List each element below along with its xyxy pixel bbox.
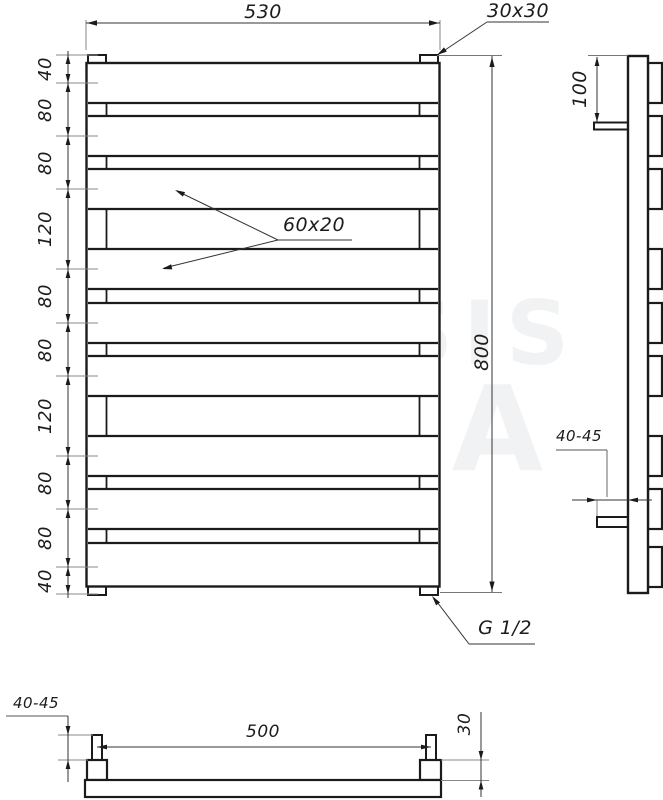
dim-label-40-45-side: 40-45	[551, 426, 607, 446]
rail-foot-left	[87, 760, 107, 780]
chain-dim-2: 80	[36, 88, 56, 132]
bar-stubs	[648, 63, 662, 587]
front-view	[87, 55, 440, 595]
bottom-view	[85, 735, 441, 797]
chain-dim-6: 80	[36, 328, 56, 372]
dim-530	[86, 20, 440, 50]
dim-100-side	[588, 56, 628, 123]
dim-label-100: 100	[570, 67, 590, 111]
dim-label-800: 800	[472, 329, 492, 375]
collector-tube-side	[628, 56, 648, 593]
rail-cap-bottom-right	[420, 587, 438, 596]
chain-dim-7: 120	[36, 394, 56, 438]
dim-800	[437, 56, 502, 593]
chain-dim-8: 80	[36, 461, 56, 505]
chain-dim-5: 80	[36, 274, 56, 318]
chain-dim-10: 40	[36, 559, 56, 603]
chain-dim-4: 120	[36, 207, 56, 251]
dim-40-45-bottom	[6, 716, 93, 782]
drawing-linework	[0, 0, 663, 800]
label-g12: G 1/2	[472, 618, 538, 638]
label-30x30: 30x30	[487, 1, 547, 21]
leader-30x30	[437, 22, 549, 55]
label-60x20: 60x20	[281, 215, 347, 235]
towel-rail-technical-drawing: GENESIS AQUA	[0, 0, 663, 800]
rail-foot-right	[420, 760, 441, 780]
dim-label-500: 500	[238, 722, 288, 742]
dim-label-30: 30	[455, 702, 475, 746]
chain-dim-3: 80	[36, 141, 56, 185]
dim-label-40-45-bottom: 40-45	[7, 693, 65, 713]
wall-bracket-bottom	[597, 517, 628, 527]
chain-dim-1: 40	[36, 47, 56, 91]
dim-500-bottom	[97, 745, 431, 750]
front-frame	[87, 63, 440, 587]
wall-bracket-top	[594, 123, 628, 130]
side-view	[594, 56, 662, 593]
collector-tube-bottom	[85, 780, 441, 797]
dim-label-530: 530	[237, 2, 289, 22]
chain-dim-9: 80	[36, 516, 56, 560]
